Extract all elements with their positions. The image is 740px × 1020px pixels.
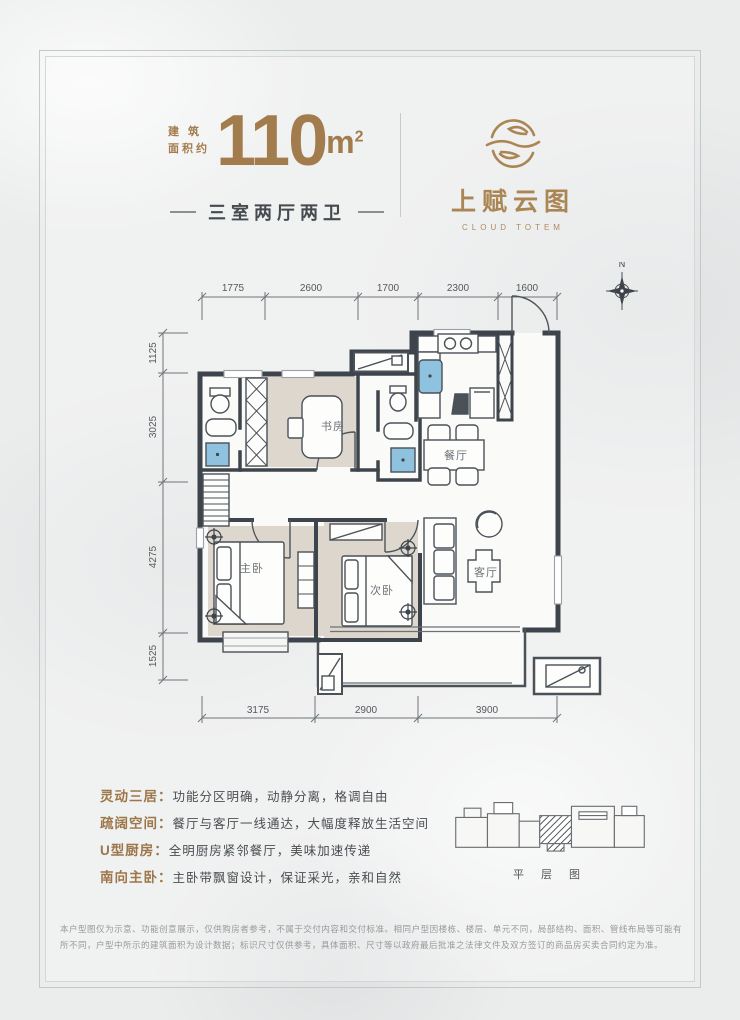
room-label-second: 次卧 [370, 583, 394, 597]
feature-label: 疏阔空间： [100, 812, 173, 832]
feature-desc: 全明厨房紧邻餐厅，美味加速传递 [169, 840, 372, 859]
area-label-line2: 面积约 [168, 141, 210, 158]
layout-subtitle: 三室两厅两卫 [208, 199, 346, 225]
dim-top-3: 1700 [377, 283, 400, 294]
area-label-line1: 建 筑 [168, 124, 210, 141]
disclaimer-text: 本户型图仅为示意、功能创意展示，仅供购房者参考，不属于交付内容和交付标准。相同户… [60, 921, 682, 954]
floorplan-poster: { "header": { "area_label_line1": "建 筑",… [0, 0, 740, 1020]
floor-plan: 1775 2600 1700 2300 1600 1125 3025 4275 … [135, 262, 655, 748]
brand-name-zh: 上赋云图 [438, 182, 588, 218]
room-label-living: 客厅 [474, 565, 498, 579]
area-unit-exponent: 2 [355, 128, 364, 145]
cloud-logo-icon [475, 104, 551, 180]
compass-label: N [619, 262, 626, 269]
compass-icon: N [606, 262, 638, 310]
feature-desc: 主卧带飘窗设计，保证采光，亲和自然 [173, 867, 403, 886]
subtitle-dash-left [170, 211, 196, 213]
floor-plan-svg: 1775 2600 1700 2300 1600 1125 3025 4275 … [135, 262, 655, 748]
layout-subtitle-row: 三室两厅两卫 [170, 199, 384, 225]
building-key-plan-label: 平 层 图 [452, 866, 648, 882]
feature-row: 灵动三居： 功能分区明确，动静分离，格调自由 [100, 785, 429, 812]
feature-row: U型厨房： 全明厨房紧邻餐厅，美味加速传递 [100, 839, 429, 866]
feature-row: 南向主卧： 主卧带飘窗设计，保证采光，亲和自然 [100, 866, 429, 893]
room-label-dining: 餐厅 [444, 448, 468, 462]
feature-label: U型厨房： [100, 839, 169, 859]
header-divider [400, 113, 401, 217]
subtitle-dash-right [358, 211, 384, 213]
feature-desc: 功能分区明确，动静分离，格调自由 [173, 786, 389, 805]
dim-left-1: 1125 [148, 342, 159, 364]
room-label-master: 主卧 [240, 562, 264, 575]
feature-label: 南向主卧： [100, 866, 173, 886]
dim-top-2: 2600 [300, 283, 323, 294]
area-unit-base: m [326, 124, 354, 160]
dim-bottom-3: 3900 [476, 705, 499, 716]
area-value: 110 [216, 112, 326, 171]
brand-name-en: CLOUD TOTEM [438, 223, 588, 232]
dim-bottom-1: 3175 [247, 705, 270, 716]
feature-row: 疏阔空间： 餐厅与客厅一线通达，大幅度释放生活空间 [100, 812, 429, 839]
feature-label: 灵动三居： [100, 785, 173, 805]
area-unit: m2 [326, 124, 363, 171]
dim-top-4: 2300 [447, 283, 470, 294]
area-title-block: 建 筑 面积约 110 m2 三室两厅两卫 [168, 112, 384, 225]
dim-top-1: 1775 [222, 283, 245, 294]
dim-top-5: 1600 [516, 283, 539, 294]
brand-logo: 上赋云图 CLOUD TOTEM [438, 104, 588, 232]
feature-list: 灵动三居： 功能分区明确，动静分离，格调自由 疏阔空间： 餐厅与客厅一线通达，大… [100, 785, 429, 893]
building-key-plan-svg [452, 793, 648, 855]
area-label: 建 筑 面积约 [168, 124, 210, 171]
dim-left-4: 1525 [148, 644, 159, 667]
feature-desc: 餐厅与客厅一线通达，大幅度释放生活空间 [173, 813, 430, 832]
dim-left-3: 4275 [148, 545, 159, 568]
room-label-study: 书房 [321, 420, 345, 433]
dim-bottom-2: 2900 [355, 705, 378, 716]
building-key-plan: 平 层 图 [452, 793, 648, 882]
dim-left-2: 3025 [148, 415, 159, 438]
